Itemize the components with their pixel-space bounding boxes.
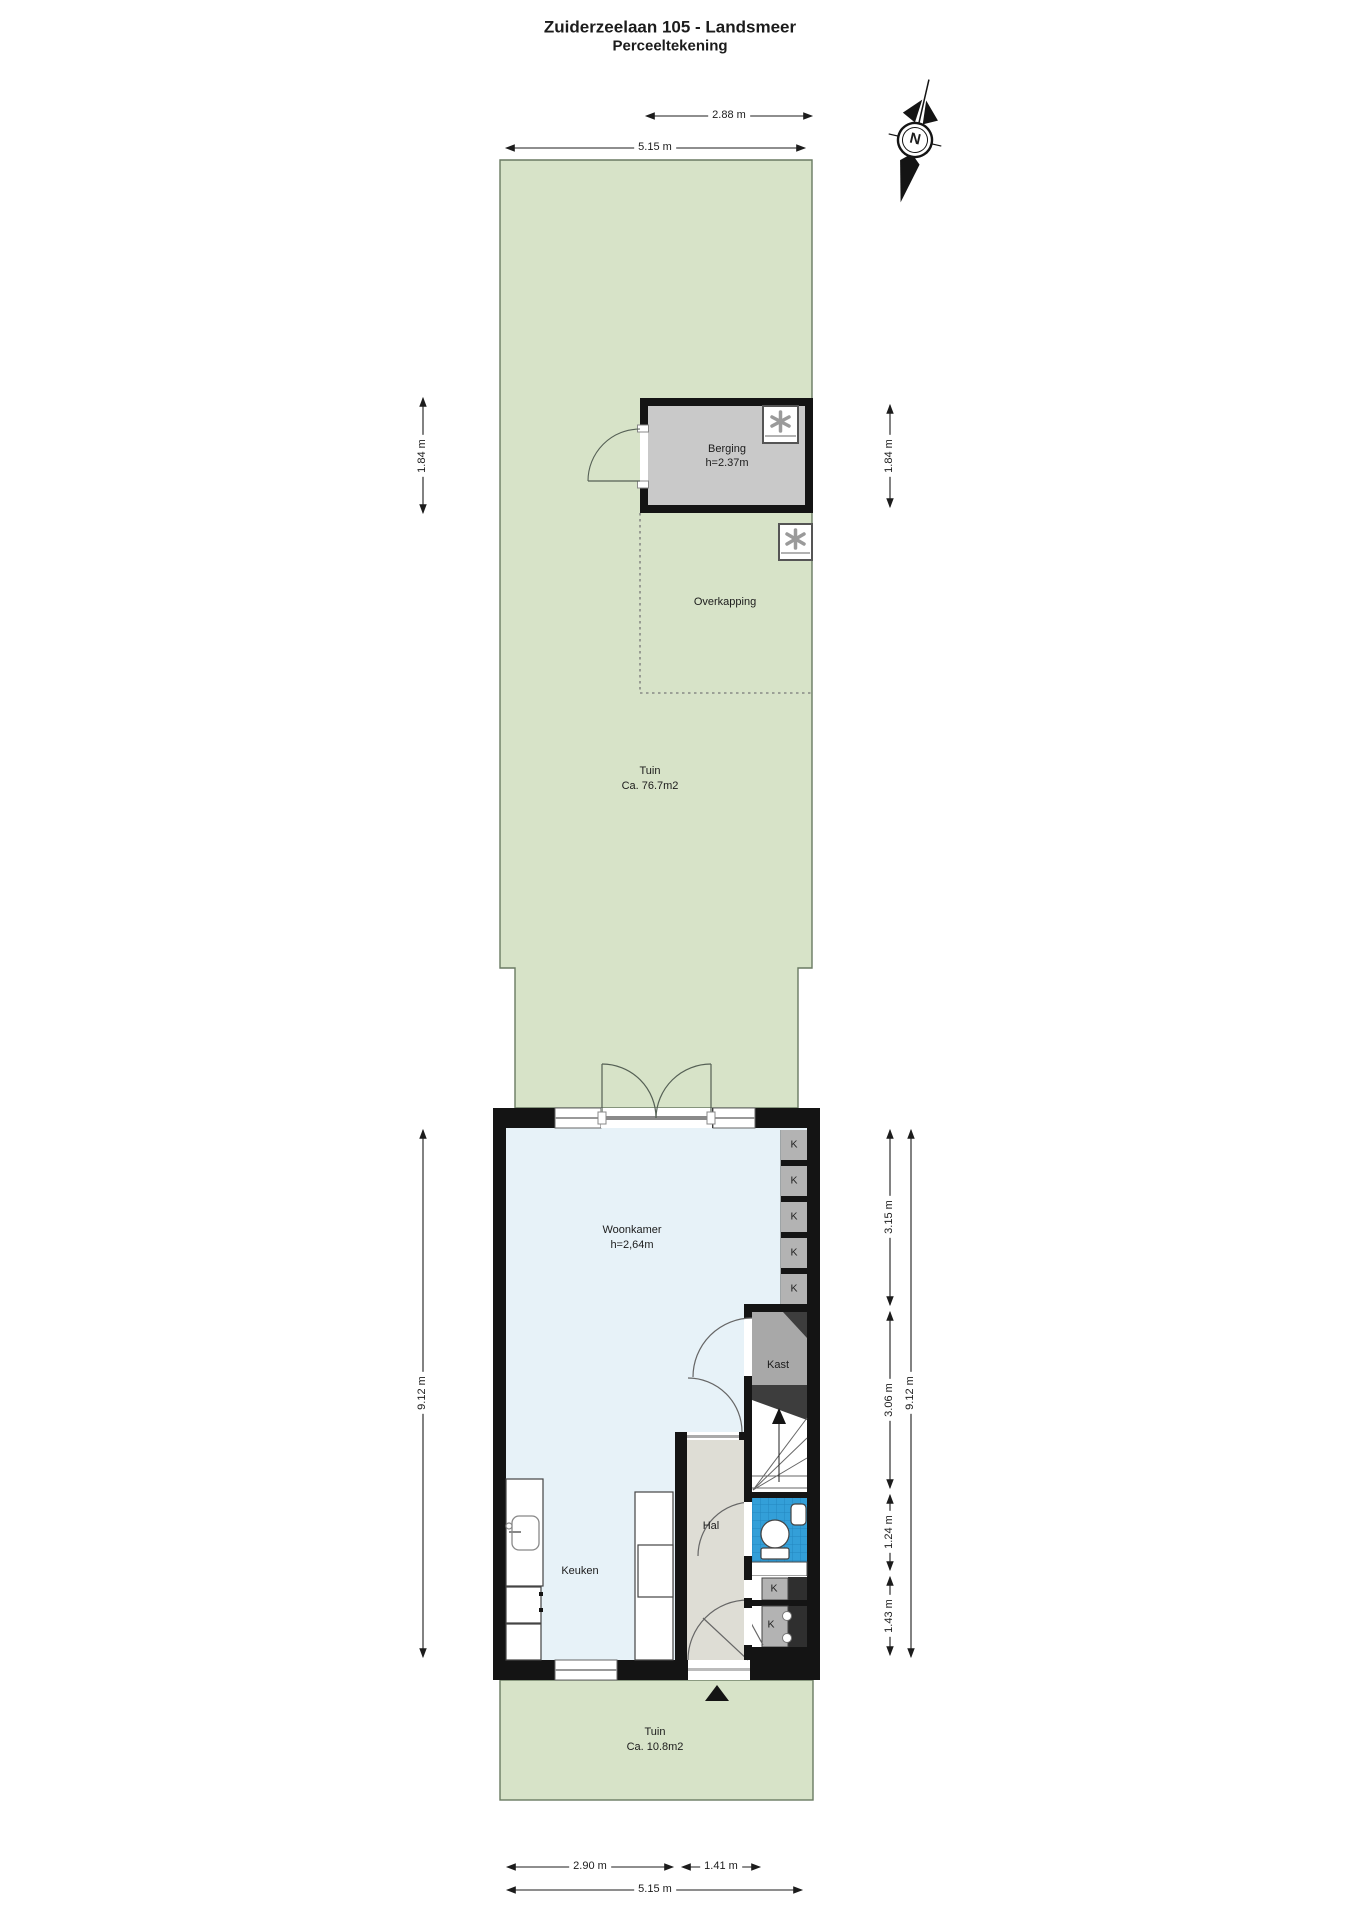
- sink-icon: [791, 1504, 806, 1525]
- dim-label-garden-front-door: 1.41 m: [700, 1860, 742, 1874]
- garden-back: [500, 160, 812, 1108]
- room-label-berging: Berging: [708, 443, 746, 457]
- floorplan-page: Zuiderzeelaan 105 - Landsmeer Perceeltek…: [0, 0, 1358, 1920]
- page-title: Zuiderzeelaan 105 - Landsmeer: [544, 16, 796, 37]
- toilet-icon: [761, 1520, 789, 1559]
- room-label-hal: Hal: [703, 1520, 720, 1534]
- room-label-tuin-front: Tuin: [645, 1726, 666, 1740]
- room-label-overkapping: Overkapping: [694, 596, 756, 610]
- room-label-kast: Kast: [767, 1359, 789, 1373]
- closet-label: K: [790, 1282, 797, 1295]
- room-label-keuken: Keuken: [561, 1565, 598, 1579]
- floorplan-geometry: [0, 0, 1358, 1920]
- closet-label: K: [770, 1582, 777, 1595]
- dim-label-shed-depth-left: 1.84 m: [416, 435, 430, 477]
- dim-label-shed-depth-right: 1.84 m: [883, 435, 897, 477]
- stairs: [752, 1385, 807, 1492]
- dim-label-plot-width-bottom: 5.15 m: [634, 1883, 676, 1897]
- room-label-woonkamer: Woonkamer: [602, 1224, 661, 1238]
- washer-icon: [763, 406, 798, 443]
- dim-label-shed-width: 2.88 m: [708, 109, 750, 123]
- dim-label-garden-front-left: 2.90 m: [569, 1860, 611, 1874]
- dim-label-house-depth-left: 9.12 m: [416, 1372, 430, 1414]
- closet-label: K: [790, 1210, 797, 1223]
- closet-label: K: [790, 1138, 797, 1151]
- closet-label: K: [790, 1174, 797, 1187]
- dim-label-plot-width-top: 5.15 m: [634, 141, 676, 155]
- room-label-tuin-back: Tuin: [640, 765, 661, 779]
- room-height-berging: h=2.37m: [705, 457, 748, 471]
- dim-label-living-depth: 3.15 m: [883, 1196, 897, 1238]
- closet-label: K: [790, 1246, 797, 1259]
- dim-label-bath-depth: 1.24 m: [883, 1511, 897, 1553]
- garden-front: [500, 1680, 813, 1800]
- dim-label-entry-depth: 1.43 m: [883, 1595, 897, 1637]
- room-area-tuin-back: Ca. 76.7m2: [622, 780, 679, 794]
- page-subtitle: Perceeltekening: [612, 38, 727, 57]
- dim-label-house-depth-right: 9.12 m: [904, 1372, 918, 1414]
- room-area-tuin-front: Ca. 10.8m2: [627, 1741, 684, 1755]
- closet-label: K: [767, 1618, 774, 1631]
- room-height-woonkamer: h=2,64m: [610, 1239, 653, 1253]
- washer-icon: [779, 524, 812, 560]
- dim-label-mid-depth: 3.06 m: [883, 1379, 897, 1421]
